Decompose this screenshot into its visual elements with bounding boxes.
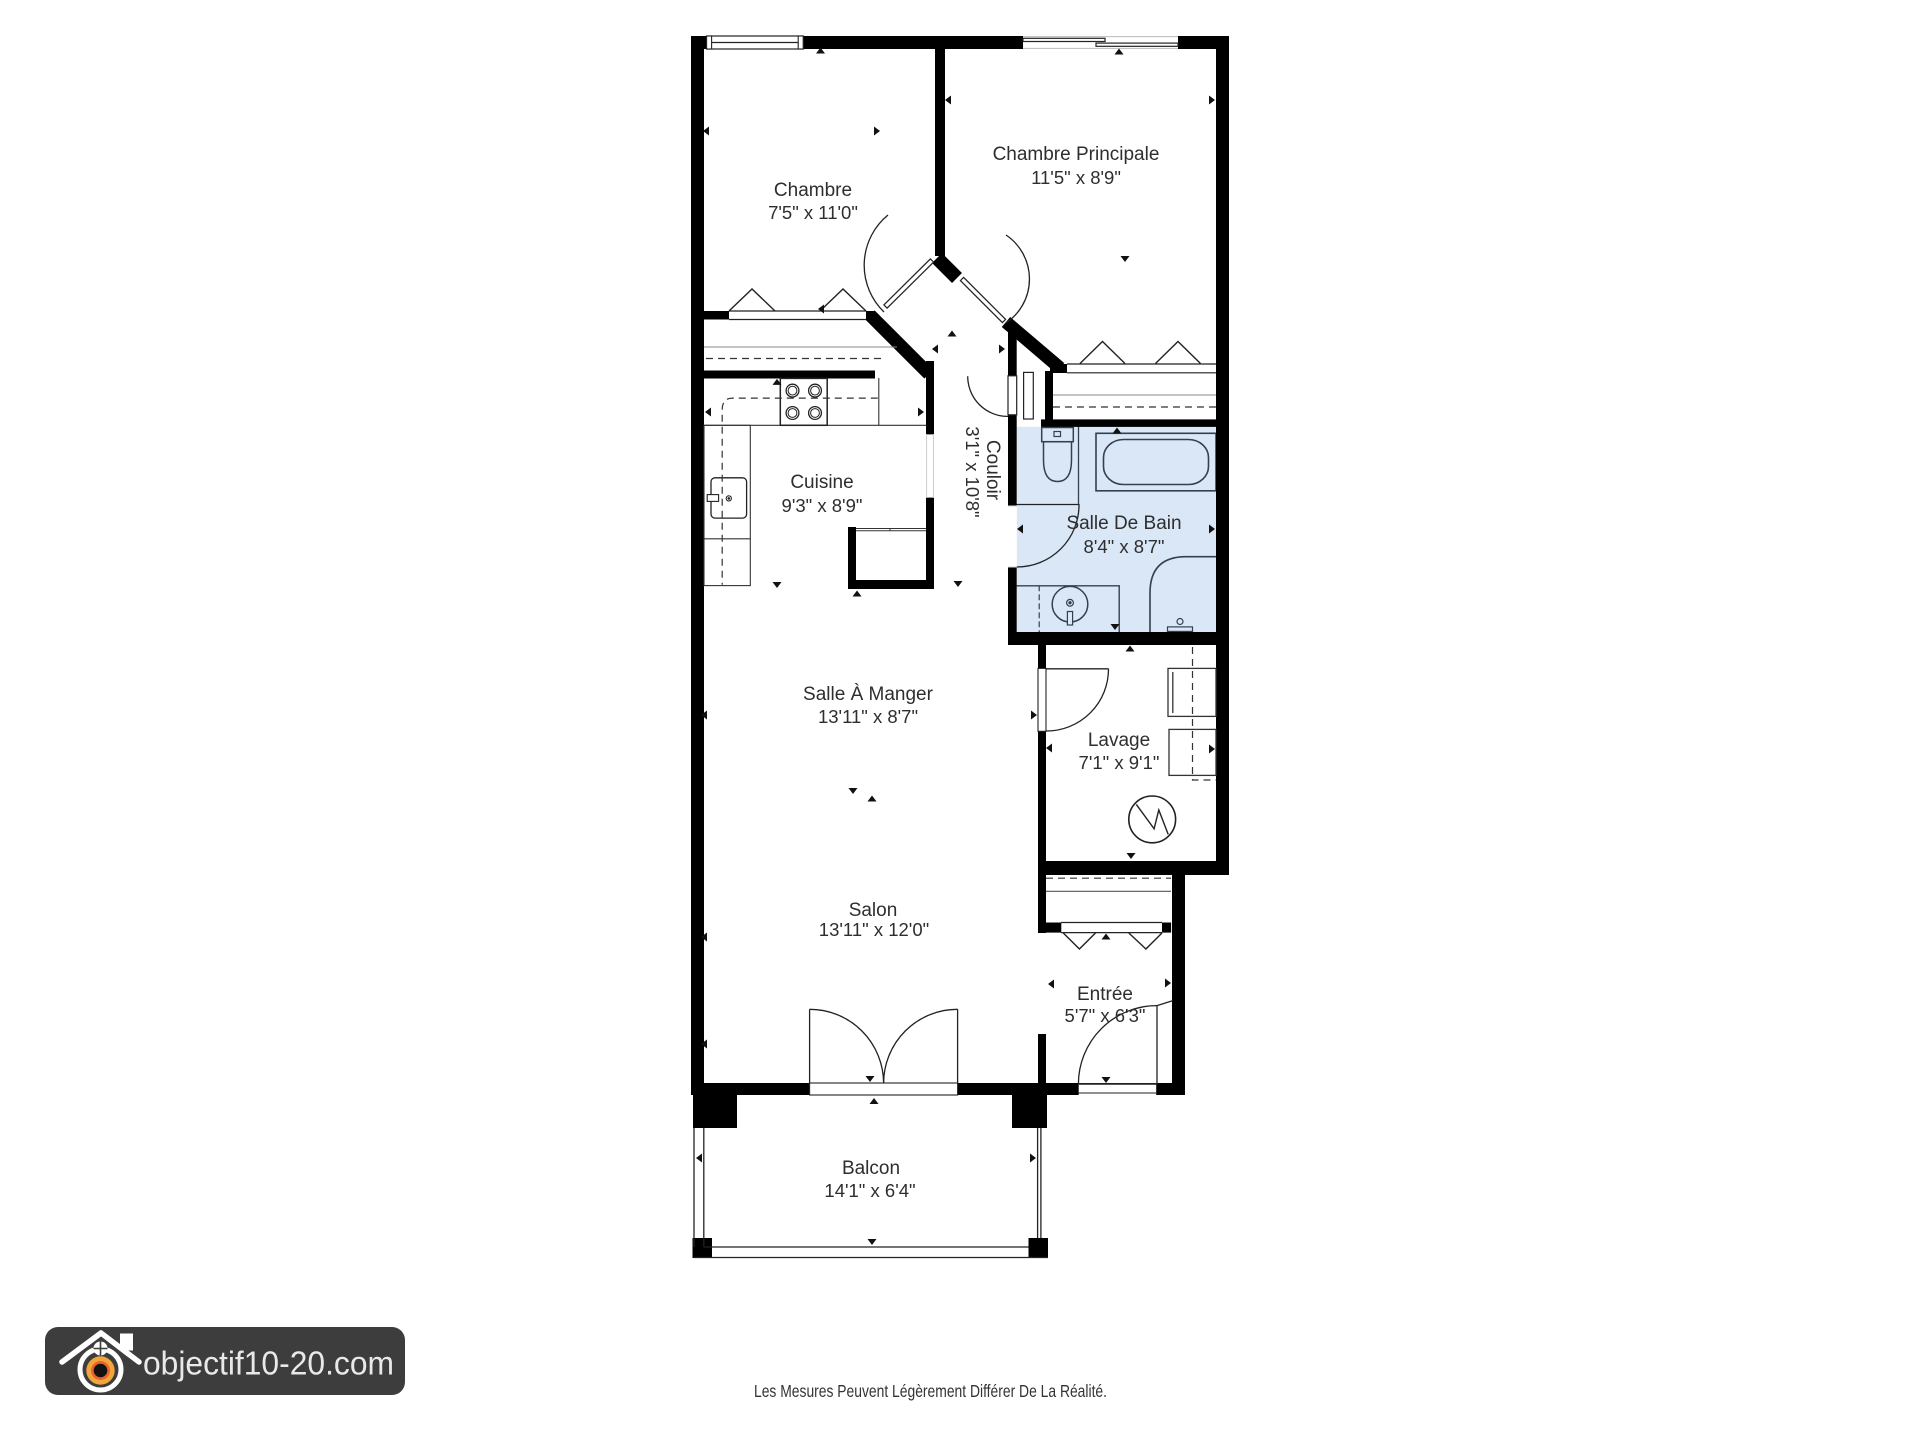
svg-text:11'5" x 8'9": 11'5" x 8'9" bbox=[1031, 167, 1121, 188]
svg-text:5'7" x 6'3": 5'7" x 6'3" bbox=[1065, 1005, 1146, 1026]
svg-text:7'1" x 9'1": 7'1" x 9'1" bbox=[1079, 752, 1160, 773]
svg-text:Salle À Manger: Salle À Manger bbox=[803, 684, 934, 705]
svg-text:Cuisine: Cuisine bbox=[790, 472, 853, 493]
svg-text:Chambre Principale: Chambre Principale bbox=[993, 144, 1160, 165]
svg-text:Salle De Bain: Salle De Bain bbox=[1066, 513, 1181, 534]
svg-text:objectif10-20.com: objectif10-20.com bbox=[143, 1345, 394, 1382]
svg-text:9'3" x 8'9": 9'3" x 8'9" bbox=[782, 495, 863, 516]
svg-text:13'11" x 12'0": 13'11" x 12'0" bbox=[819, 919, 929, 940]
svg-text:Lavage: Lavage bbox=[1088, 730, 1150, 751]
svg-text:8'4" x 8'7": 8'4" x 8'7" bbox=[1084, 536, 1165, 557]
svg-text:Les Mesures Peuvent Légèrement: Les Mesures Peuvent Légèrement Différer … bbox=[754, 1381, 1107, 1401]
svg-text:3'1" x 10'8": 3'1" x 10'8" bbox=[962, 426, 983, 517]
svg-text:Entrée: Entrée bbox=[1077, 984, 1133, 1005]
svg-text:14'1" x 6'4": 14'1" x 6'4" bbox=[824, 1180, 915, 1201]
svg-text:Balcon: Balcon bbox=[842, 1158, 900, 1179]
svg-text:Couloir: Couloir bbox=[982, 440, 1003, 501]
svg-text:13'11" x 8'7": 13'11" x 8'7" bbox=[818, 706, 918, 727]
svg-text:Salon: Salon bbox=[849, 900, 898, 921]
svg-text:7'5" x 11'0": 7'5" x 11'0" bbox=[768, 202, 858, 223]
svg-text:Chambre: Chambre bbox=[774, 180, 852, 201]
